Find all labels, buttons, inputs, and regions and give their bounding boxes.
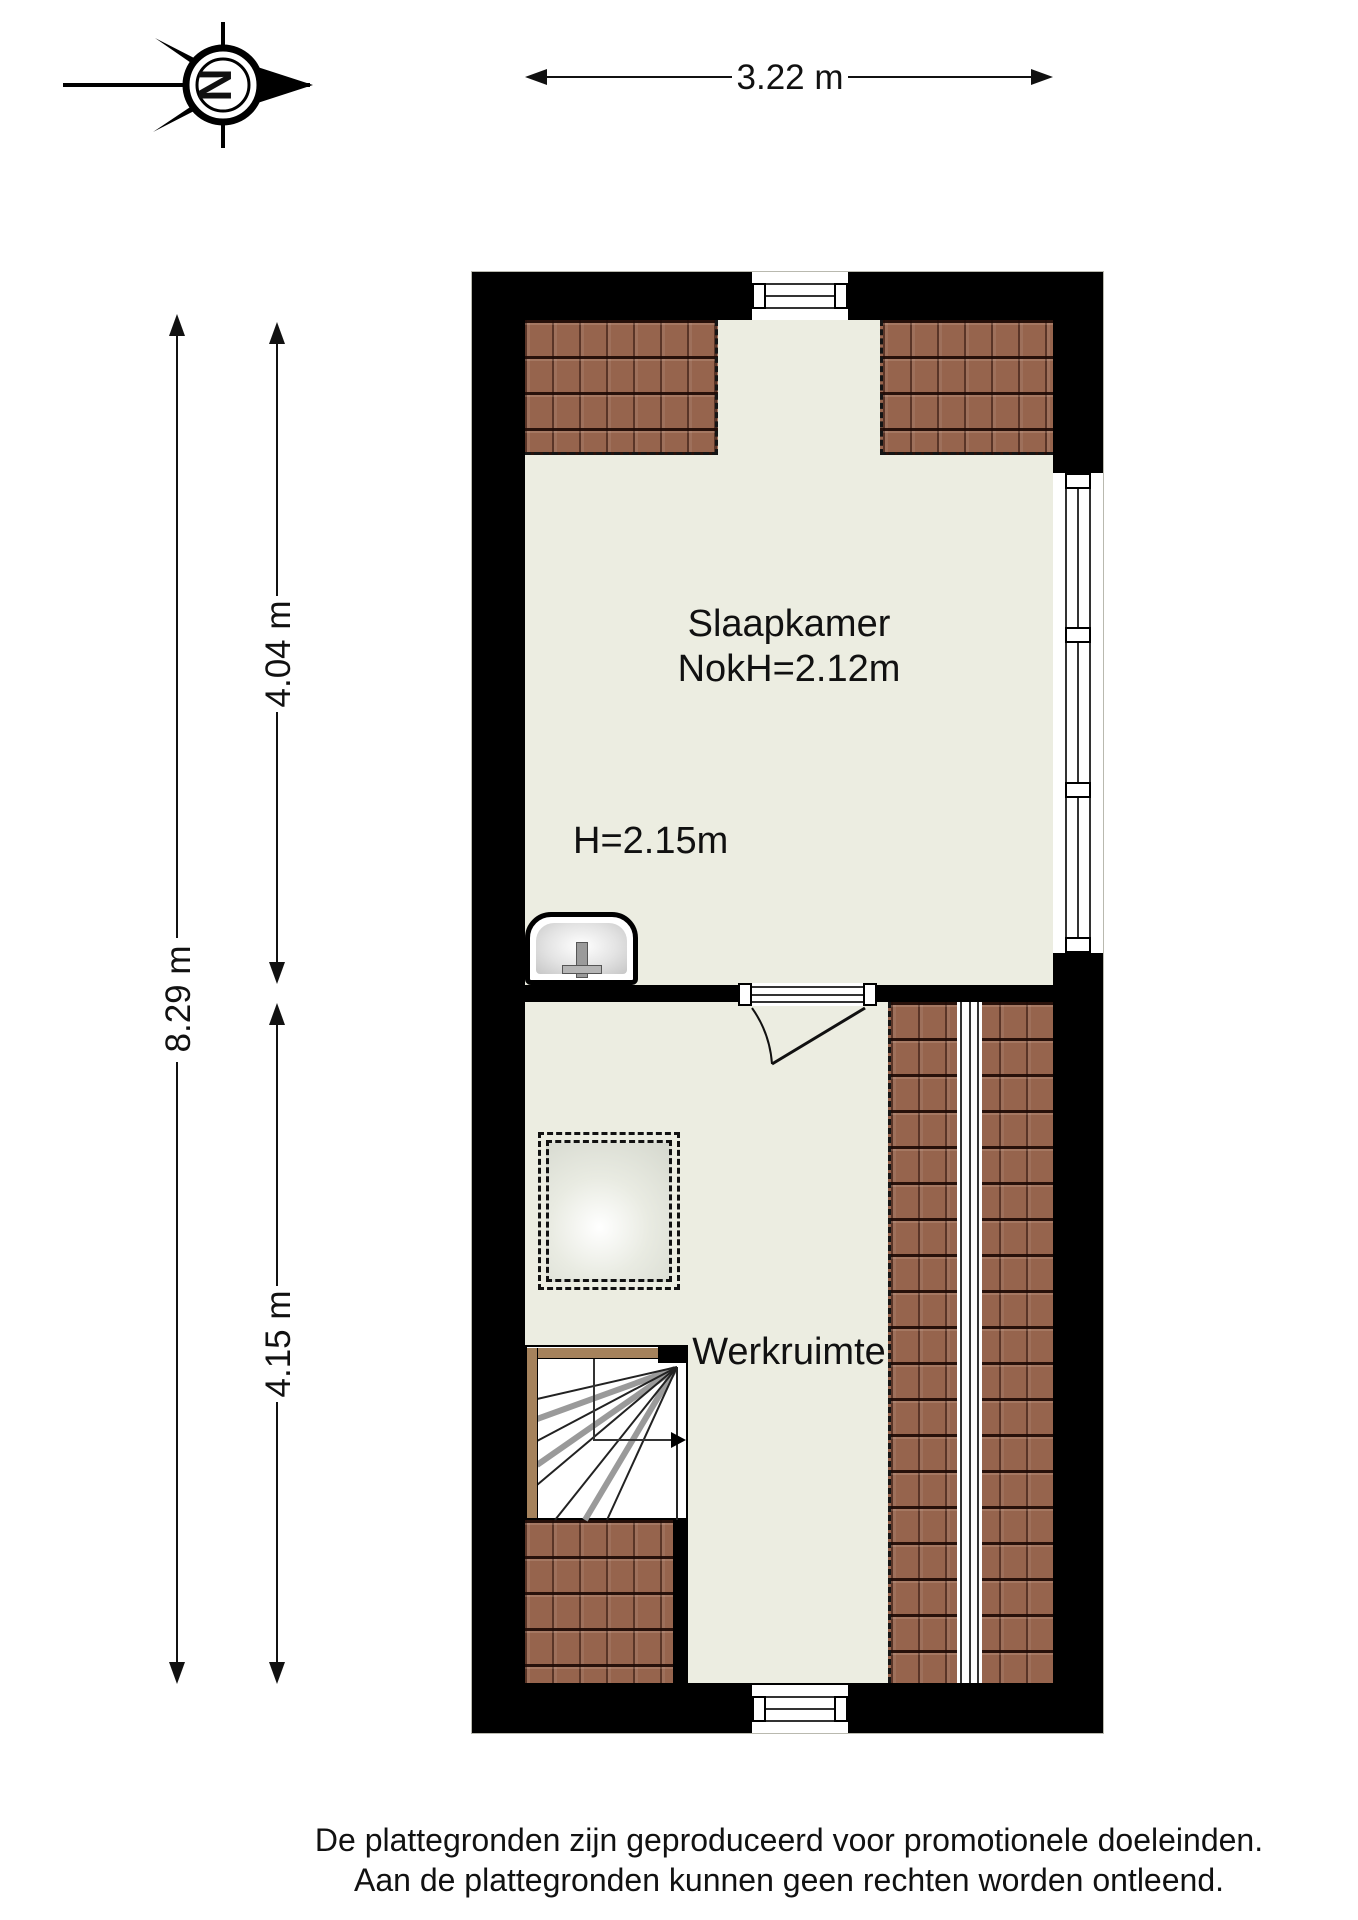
window-right-post-2 — [1065, 627, 1091, 643]
slaapkamer-name: Slaapkamer — [525, 602, 1053, 647]
wall-stub-stairs — [673, 1520, 688, 1683]
window-right — [1053, 473, 1103, 953]
window-bottom — [752, 1685, 848, 1733]
door-opening — [738, 983, 877, 1006]
window-top-frame — [766, 283, 834, 309]
compass-letter: N — [189, 68, 241, 101]
north-compass: N — [55, 18, 335, 153]
floorplan-page: N 3.22 m 8.29 m 4.04 m — [0, 0, 1358, 1920]
window-top — [752, 272, 848, 320]
floorplan: Slaapkamer NokH=2.12m H=2.15m Werkruimte — [472, 272, 1103, 1733]
dim-height-lower-label: 4.15 m — [259, 1291, 298, 1398]
slaapkamer-ceiling-height: H=2.15m — [573, 820, 728, 863]
dim-width-top: 3.22 m — [470, 55, 1110, 99]
dim-height-lower: 4.15 m — [259, 1003, 298, 1684]
window-top-right-post — [834, 283, 848, 309]
window-bottom-left-post — [752, 1696, 766, 1722]
sink-icon — [525, 912, 638, 985]
window-right-post-1 — [1065, 473, 1091, 489]
slaapkamer-ridge-height: NokH=2.12m — [525, 647, 1053, 692]
window-bottom-frame — [766, 1696, 834, 1722]
skylight — [538, 1132, 680, 1290]
window-top-left-post — [752, 283, 766, 309]
window-bottom-right-post — [834, 1696, 848, 1722]
skylight-inner — [546, 1140, 672, 1282]
room-label-werkruimte: Werkruimte — [525, 1330, 1053, 1375]
dim-height-upper-label: 4.04 m — [259, 601, 298, 708]
door-swing — [740, 1006, 880, 1086]
disclaimer-line-1: De plattegronden zijn geproduceerd voor … — [179, 1820, 1358, 1860]
dim-width-top-label: 3.22 m — [737, 58, 844, 97]
roof-tiles-bottom-left — [525, 1520, 673, 1683]
door-frame — [752, 986, 863, 1003]
door-left-post — [738, 983, 752, 1006]
window-right-frame — [1065, 473, 1091, 953]
dim-height-upper: 4.04 m — [259, 322, 298, 984]
window-right-post-4 — [1065, 937, 1091, 953]
dim-height-total-label: 8.29 m — [159, 946, 198, 1053]
disclaimer-line-2: Aan de plattegronden kunnen geen rechten… — [179, 1860, 1358, 1900]
window-right-post-3 — [1065, 782, 1091, 798]
room-label-slaapkamer: Slaapkamer NokH=2.12m — [525, 602, 1053, 692]
door-right-post — [863, 983, 877, 1006]
dim-height-total: 8.29 m — [159, 314, 198, 1684]
disclaimer: De plattegronden zijn geproduceerd voor … — [179, 1820, 1358, 1900]
roof-tiles-top-left — [525, 320, 718, 455]
sink-faucet-bar — [562, 965, 602, 974]
dim-heights-left: 8.29 m 4.04 m 4.15 m — [150, 300, 320, 1700]
roof-tiles-top-right — [880, 320, 1053, 455]
north-arrow-icon: N — [63, 22, 313, 148]
